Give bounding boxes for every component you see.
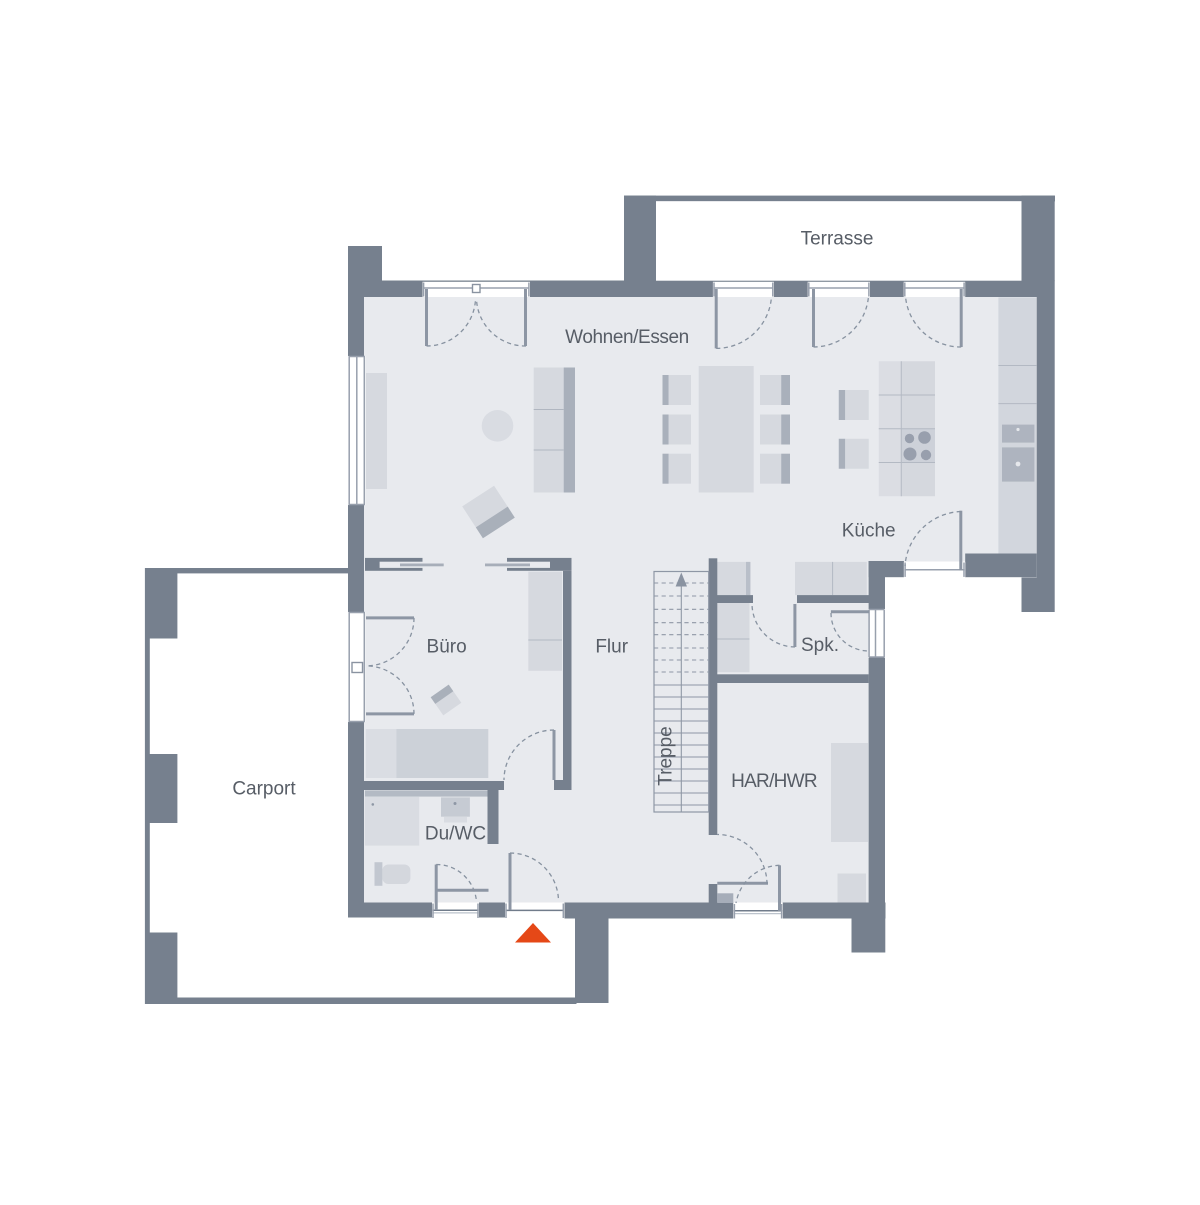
- svg-text:HAR/HWR: HAR/HWR: [731, 771, 817, 792]
- svg-text:Küche: Küche: [842, 520, 896, 541]
- svg-text:Terrasse: Terrasse: [801, 229, 874, 250]
- svg-text:Spk.: Spk.: [801, 635, 839, 656]
- svg-text:Du/WC: Du/WC: [425, 823, 486, 844]
- svg-text:Büro: Büro: [427, 637, 467, 658]
- svg-text:Wohnen/Essen: Wohnen/Essen: [565, 327, 689, 348]
- svg-text:Treppe: Treppe: [656, 726, 677, 786]
- svg-text:Flur: Flur: [595, 637, 628, 658]
- svg-text:Carport: Carport: [232, 779, 296, 800]
